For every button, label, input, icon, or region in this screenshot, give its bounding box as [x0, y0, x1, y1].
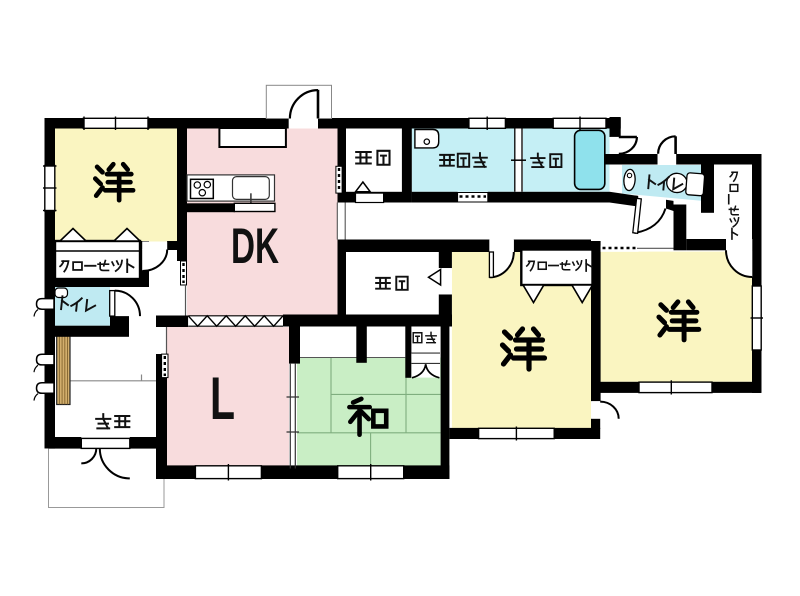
svg-text:DK: DK [231, 218, 279, 274]
svg-text:L: L [210, 365, 235, 432]
